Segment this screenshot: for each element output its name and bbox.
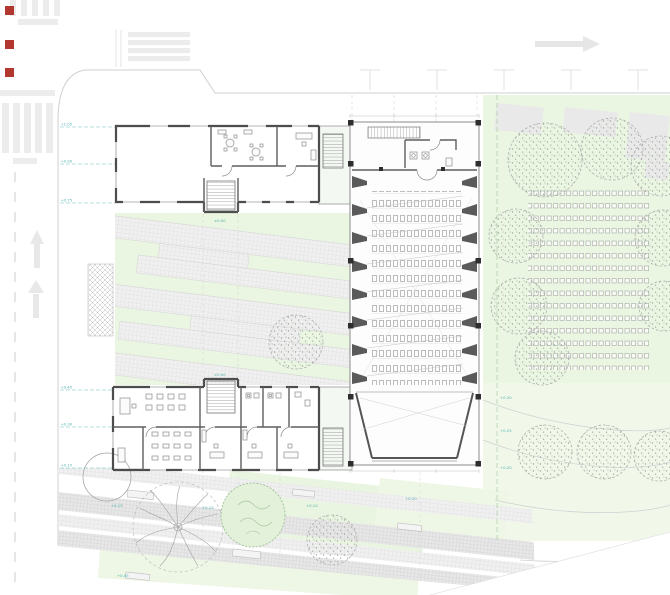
north-link-stair <box>323 134 343 168</box>
level-label: +1.05 <box>61 122 73 127</box>
crosswalk-top-middle <box>116 30 190 67</box>
north-entry-stair <box>207 181 235 210</box>
north-wing <box>115 125 352 212</box>
red-marker <box>5 6 14 15</box>
level-label: +0.20 <box>405 496 417 501</box>
level-label: +0.90 <box>61 159 73 164</box>
north-wing-doors <box>222 166 296 176</box>
level-label: +0.15 <box>111 503 123 508</box>
red-marker <box>5 40 14 49</box>
site-plan-canvas: +1.05 +0.90 +0.75 +0.45 +0.30 +0.15 +0.3… <box>0 0 670 595</box>
level-label: +0.30 <box>61 422 73 427</box>
road-arrow-straight <box>30 230 44 268</box>
courtyard-tree <box>269 315 323 369</box>
level-label: +0.10 <box>306 503 318 508</box>
south-wing <box>113 379 352 470</box>
level-label: +0.05 <box>117 573 129 578</box>
road-arrow-turn <box>28 280 44 318</box>
south-entry-stair <box>207 381 235 413</box>
auditorium-stair-strip <box>368 127 420 138</box>
level-label: ±0.00 <box>214 218 226 223</box>
street-lamps <box>360 70 648 90</box>
red-marker <box>5 68 14 77</box>
level-label: +0.15 <box>202 505 214 510</box>
office-desks <box>202 430 298 458</box>
south-link-stair <box>323 428 343 466</box>
crosswalk-top-left <box>10 0 60 25</box>
level-label: +0.75 <box>61 198 73 203</box>
level-label: +0.30 <box>500 395 512 400</box>
wc-fixtures <box>246 392 310 406</box>
auditorium <box>348 114 481 473</box>
site-plan-drawing: +1.05 +0.90 +0.75 +0.45 +0.30 +0.15 +0.3… <box>0 0 670 595</box>
level-label: +0.20 <box>500 465 512 470</box>
site-markers <box>5 6 14 77</box>
ramp-hatch <box>88 264 113 336</box>
classroom-furniture <box>118 432 191 462</box>
plaza-tree-leafy <box>221 483 285 547</box>
level-label: +0.15 <box>61 463 73 468</box>
direction-arrow-icon <box>535 36 600 52</box>
plaza-tree-round <box>307 515 357 565</box>
level-label: +0.25 <box>500 428 512 433</box>
seating-rows <box>372 191 462 385</box>
staff-room-furniture <box>120 394 185 414</box>
reading-room-furniture <box>218 130 263 160</box>
level-label: ±0.00 <box>214 372 226 377</box>
parking-stripes-left <box>0 90 55 164</box>
column-grid-verticals <box>352 95 477 122</box>
wall-tick <box>379 167 383 171</box>
office-furniture <box>296 133 316 160</box>
level-label: +0.45 <box>61 385 73 390</box>
wall-tick <box>441 167 445 171</box>
